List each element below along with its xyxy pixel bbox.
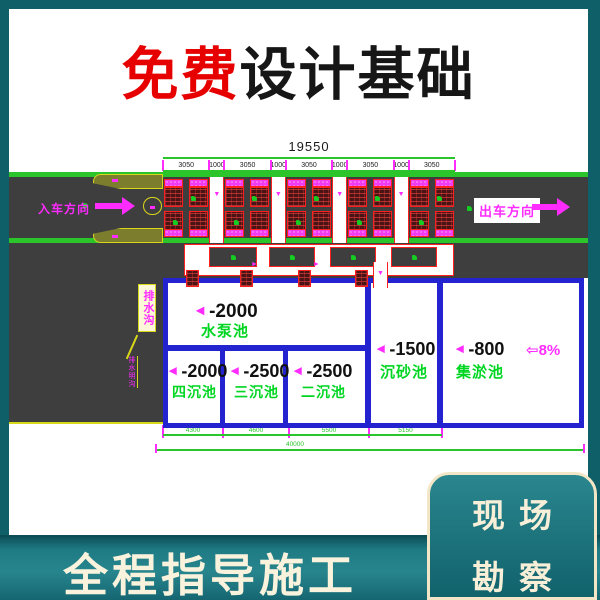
pool-wall [365, 278, 371, 428]
wash-bay-brick [287, 187, 306, 207]
green-mark [419, 220, 424, 225]
pool-depth-sludge: ◄-800 [453, 339, 504, 360]
island-mark [112, 179, 118, 182]
top-dim-value: 1000 [393, 162, 409, 169]
wash-bay-cap [287, 229, 306, 237]
flow-arrow-icon: ► [313, 261, 320, 268]
green-mark [252, 196, 257, 201]
island-mark [112, 235, 118, 238]
flow-arrow-icon: ▼ [377, 270, 384, 277]
depth-marker-icon: ◄ [374, 341, 387, 356]
flow-arrow-icon: ▼ [398, 191, 405, 198]
pool-wall [283, 345, 288, 428]
wash-bay-cap [410, 179, 429, 187]
badge-line-1: 现场 [430, 489, 594, 537]
banner-text: 全程指导施工 [0, 539, 420, 600]
flow-arrow-icon: ▼ [336, 191, 343, 198]
ground-left [9, 243, 163, 424]
dimension-line [155, 449, 585, 451]
wash-bay-cap [225, 229, 244, 237]
wash-bay-cap [435, 229, 454, 237]
slope-arrow-icon: ⇦ [526, 342, 539, 359]
flow-channel: ▼ [209, 177, 224, 243]
pool-wall [437, 278, 443, 428]
wash-bay-cap [189, 229, 208, 237]
wash-bay-cap [348, 179, 367, 187]
corner-badge: 现场 勘察 [427, 472, 597, 600]
drain-box [391, 247, 437, 267]
green-mark [296, 220, 301, 225]
note-leader-text: 排水明沟 [126, 356, 138, 388]
pool-depth-four: ◄-2000 [166, 361, 227, 382]
wash-bay-brick [189, 211, 208, 231]
pool-wall [220, 345, 225, 428]
wash-bay-brick [312, 211, 331, 231]
top-dim-value: 3050 [301, 162, 317, 169]
bottom-dim-total: 40000 [155, 442, 435, 449]
entry-arrow-icon [95, 203, 122, 209]
title-rest: 设计基础 [240, 43, 476, 107]
dimension-tick [155, 444, 157, 453]
flow-arrow-icon: ▼ [275, 191, 282, 198]
flow-channel: ▼ [332, 177, 347, 243]
inlet-connector [355, 270, 368, 287]
wash-bay-brick [435, 211, 454, 231]
pool-name-three: 三沉池 [234, 382, 279, 402]
top-dim-value: 1000 [332, 162, 348, 169]
flow-channel: ▼ [271, 177, 286, 243]
slope-label: ⇦8% [526, 341, 560, 359]
pool-depth-two: ◄-2500 [291, 361, 352, 382]
wash-bay-cap [189, 179, 208, 187]
top-dim-value: 3050 [240, 162, 256, 169]
wash-bay-brick [225, 187, 244, 207]
wash-bay-brick [250, 211, 269, 231]
flow-arrow-icon: ▼ [213, 191, 220, 198]
pool-wall [163, 345, 371, 351]
title-highlight: 免费 [122, 43, 240, 107]
green-mark [314, 196, 319, 201]
top-dim-value: 3050 [178, 162, 194, 169]
entry-direction-label: 入车方向 [38, 200, 90, 217]
wash-bay-cap [312, 179, 331, 187]
flow-channel: ▼ [394, 177, 409, 243]
green-mark [231, 255, 236, 260]
wash-bay-cap [225, 179, 244, 187]
wash-bay-cap [373, 179, 392, 187]
flow-arrow-icon: ► [251, 261, 258, 268]
top-dim-total: 19550 [163, 139, 455, 154]
dimension-line [163, 170, 455, 172]
green-mark [290, 255, 295, 260]
wash-bay-cap [435, 179, 454, 187]
pool-name-pump: 水泵池 [201, 320, 249, 341]
wash-bay-cap [164, 179, 183, 187]
wash-bay-cap [164, 229, 183, 237]
wash-bay-brick [373, 211, 392, 231]
note-box: 排水沟 [138, 284, 156, 332]
dimension-tick [583, 444, 585, 453]
green-mark [234, 220, 239, 225]
poster: 免费设计基础 19550 305010003050100030501000305… [0, 0, 600, 600]
green-mark [173, 220, 178, 225]
exit-arrow-icon [532, 204, 557, 210]
wash-bay-cap [410, 229, 429, 237]
inlet-connector [240, 270, 253, 287]
green-mark [412, 255, 417, 260]
depth-marker-icon: ◄ [453, 341, 466, 356]
green-mark [375, 196, 380, 201]
wash-bay-brick [348, 187, 367, 207]
pool-name-two: 二沉池 [301, 382, 346, 402]
green-mark [191, 196, 196, 201]
inlet-connector [186, 270, 199, 287]
wash-bay-brick [410, 187, 429, 207]
inlet-connector [298, 270, 311, 287]
drain-band: ►►► [184, 244, 454, 276]
top-dim-value: 3050 [363, 162, 379, 169]
pool-depth-three: ◄-2500 [228, 361, 289, 382]
exit-direction-label: 出车方向 [474, 198, 540, 223]
drain-box [209, 247, 257, 267]
dimension-line [163, 434, 442, 436]
pool-name-four: 四沉池 [172, 382, 217, 402]
top-dim-value: 3050 [424, 162, 440, 169]
drain-box [330, 247, 376, 267]
badge-line-2: 勘察 [430, 551, 594, 599]
top-dim-value: 1000 [209, 162, 225, 169]
pool-depth-grit: ◄-1500 [374, 339, 435, 360]
depth-marker-icon: ◄ [193, 303, 207, 319]
green-mark [351, 255, 356, 260]
wash-bay-cap [287, 179, 306, 187]
top-dim-value: 1000 [271, 162, 287, 169]
green-mark [437, 196, 442, 201]
pool-name-sludge: 集淤池 [456, 361, 504, 382]
wash-bay-cap [348, 229, 367, 237]
page-title: 免费设计基础 [9, 44, 588, 107]
wash-bay-cap [312, 229, 331, 237]
pool-name-grit: 沉砂池 [380, 361, 428, 382]
green-mark [467, 206, 472, 211]
green-mark [357, 220, 362, 225]
wash-bay-cap [250, 179, 269, 187]
drain-box [269, 247, 315, 267]
wash-bay-cap [373, 229, 392, 237]
depth-marker-icon: ◄ [166, 363, 179, 378]
inlet-channel: ▼ [373, 262, 388, 288]
capsule-mark [150, 206, 155, 209]
depth-marker-icon: ◄ [228, 363, 241, 378]
wash-bay-cap [250, 229, 269, 237]
depth-marker-icon: ◄ [291, 363, 304, 378]
wash-bay-brick [164, 187, 183, 207]
